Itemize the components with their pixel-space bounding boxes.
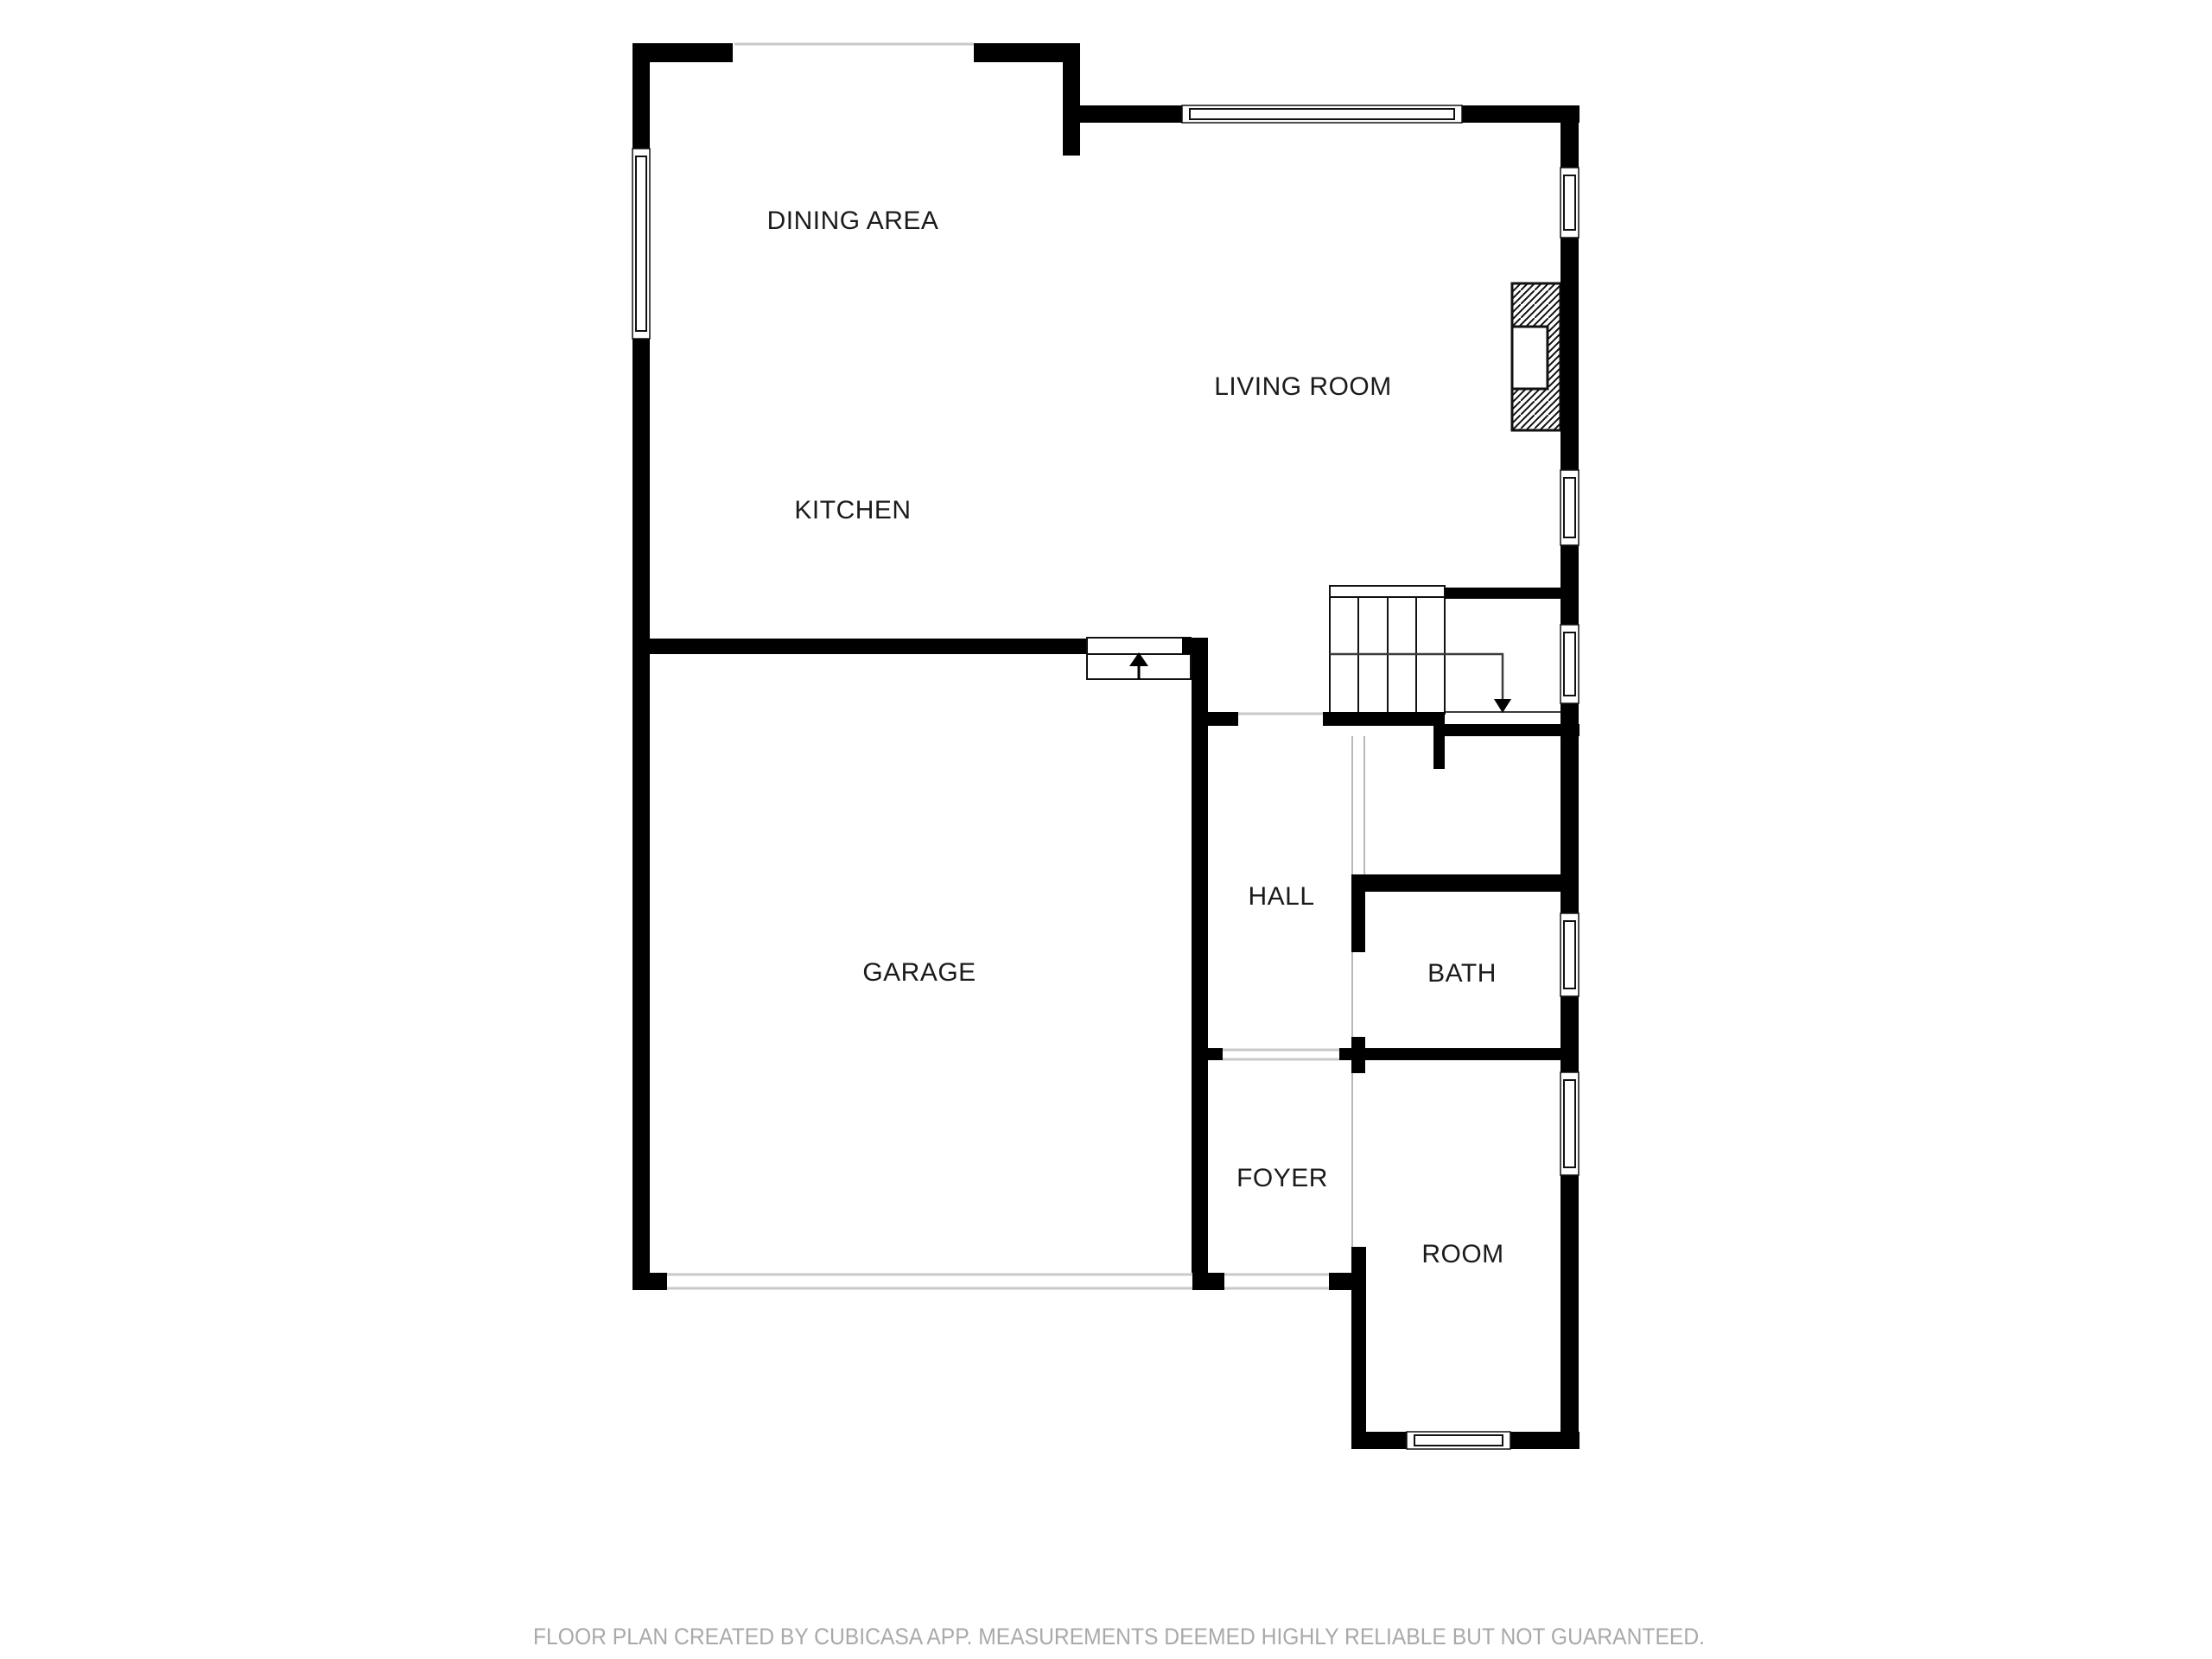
wall	[1560, 105, 1579, 168]
wall	[1208, 712, 1238, 726]
living-east-window-upper-glazing	[1564, 175, 1575, 230]
room-label-kitchen: KITCHEN	[794, 496, 911, 524]
room-label-hall: HALL	[1248, 882, 1314, 911]
room-label-bath: BATH	[1427, 959, 1497, 988]
wall	[1351, 874, 1365, 952]
room-label-room: ROOM	[1421, 1240, 1503, 1268]
fireplace-firebox	[1512, 327, 1548, 389]
wall	[1560, 1175, 1579, 1449]
stairs-down-arrow-head	[1494, 699, 1511, 713]
floor-plan: DINING AREALIVING ROOMKITCHENGARAGEHALLB…	[0, 0, 2212, 1659]
walls	[632, 43, 1580, 1449]
wall	[1323, 712, 1445, 726]
wall	[1063, 43, 1080, 156]
wall	[1351, 1432, 1407, 1449]
room-east-window-glazing	[1564, 1080, 1575, 1167]
wall	[1192, 1048, 1223, 1060]
wall	[1433, 726, 1445, 769]
fixtures	[1087, 283, 1560, 714]
wall	[632, 43, 650, 149]
room-label-garage: GARAGE	[862, 958, 976, 987]
wall	[1192, 638, 1208, 1273]
wall	[1445, 724, 1580, 736]
room-south-window-glazing	[1414, 1435, 1503, 1446]
landing-east-window-glazing	[1564, 632, 1575, 696]
wall	[632, 1273, 667, 1290]
living-north-window-glazing	[1190, 109, 1454, 119]
footer-disclaimer: FLOOR PLAN CREATED BY CUBICASA APP. MEAS…	[533, 1624, 1705, 1649]
wall	[632, 339, 650, 1273]
wall	[1510, 1432, 1580, 1449]
living-east-window-lower-glazing	[1564, 478, 1575, 537]
room-labels: DINING AREALIVING ROOMKITCHENGARAGEHALLB…	[767, 207, 1504, 1268]
wall	[1339, 1048, 1564, 1060]
wall	[1080, 105, 1184, 123]
wall	[1560, 996, 1579, 1072]
room-label-living-room: LIVING ROOM	[1214, 372, 1392, 401]
room-label-dining-area: DINING AREA	[767, 207, 939, 235]
wall	[632, 639, 1086, 654]
wall	[1353, 874, 1564, 892]
dining-window-glazing	[636, 156, 646, 331]
wall	[1445, 588, 1560, 599]
room-label-foyer: FOYER	[1236, 1164, 1328, 1192]
wall	[1192, 1273, 1224, 1290]
wall	[1329, 1273, 1366, 1290]
wall	[1560, 545, 1579, 625]
bath-window-glazing	[1564, 921, 1575, 988]
wall	[1560, 238, 1579, 470]
floor-plan-svg: DINING AREALIVING ROOMKITCHENGARAGEHALLB…	[0, 0, 2212, 1659]
